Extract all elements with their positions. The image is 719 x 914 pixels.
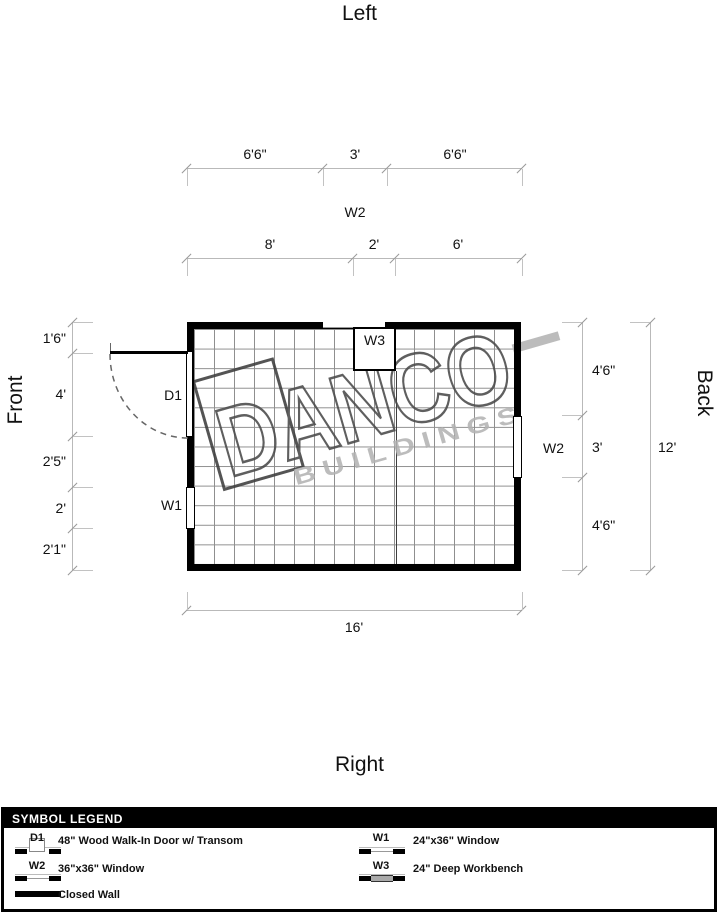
dim-left-seg5: 2'1": [26, 541, 66, 557]
dim-extension: [522, 592, 523, 610]
legend-w2-desc: 36"x36" Window: [58, 863, 144, 875]
dim-line: [187, 258, 522, 259]
legend-w3-code: W3: [356, 860, 406, 872]
legend-w1-code: W1: [356, 832, 406, 844]
legend-window-glyph: [27, 878, 49, 879]
orientation-label-bottom: Right: [0, 753, 719, 777]
dim-extension: [73, 353, 93, 354]
symbol-legend: SYMBOL LEGEND D1 48" Wood Walk-In Door w…: [1, 807, 717, 912]
dim-right-seg2: 3': [592, 439, 602, 455]
dim-top1-seg1: 6'6": [225, 146, 285, 162]
legend-symbol-wall-cap: [15, 876, 27, 881]
dim-right-seg1: 4'6": [592, 362, 615, 378]
legend-symbol-wall-cap: [359, 849, 371, 854]
workbench-label: W3: [355, 332, 394, 348]
legend-d1-code: D1: [12, 832, 62, 844]
dim-line: [650, 322, 651, 570]
legend-workbench-glyph: [371, 875, 393, 882]
dim-top2-seg1: 8': [240, 236, 300, 252]
window-w1-label: W1: [150, 497, 182, 513]
dim-bottom-total: 16': [324, 619, 384, 635]
dim-left-seg2: 4': [26, 386, 66, 402]
window-w2-right-label: W2: [543, 440, 564, 456]
door-d1-opening: [186, 351, 193, 437]
dim-extension: [562, 415, 582, 416]
dim-extension: [323, 169, 324, 186]
dim-line: [72, 322, 73, 570]
dim-extension: [562, 570, 582, 571]
legend-title: SYMBOL LEGEND: [4, 810, 714, 828]
dim-extension: [395, 259, 396, 276]
dim-top1-seg3: 6'6": [425, 146, 485, 162]
legend-symbol-wall-cap: [15, 849, 27, 854]
dim-extension: [562, 322, 582, 323]
dim-feature-w2-label: W2: [325, 204, 385, 220]
window-w2-right-opening: [513, 416, 522, 478]
dim-right-seg3: 4'6": [592, 517, 615, 533]
legend-w3-desc: 24" Deep Workbench: [413, 863, 523, 875]
dim-extension: [630, 570, 650, 571]
dim-top2-seg3: 6': [428, 236, 488, 252]
door-leaf-tip-dash: [110, 343, 111, 351]
dim-extension: [187, 592, 188, 610]
dim-extension: [630, 322, 650, 323]
dim-extension: [73, 570, 93, 571]
window-w1-opening: [186, 487, 195, 529]
orientation-label-top: Left: [0, 2, 719, 26]
dim-extension: [522, 259, 523, 276]
dim-right-total: 12': [658, 439, 676, 455]
orientation-label-left: Front: [4, 360, 28, 440]
dim-extension: [353, 259, 354, 276]
legend-symbol-wall-cap: [49, 876, 61, 881]
dim-extension: [73, 322, 93, 323]
legend-symbol-wall-cap: [359, 876, 371, 881]
orientation-label-right: Back: [692, 353, 716, 433]
dim-left-seg1: 1'6": [26, 330, 66, 346]
legend-symbol-wall-cap: [393, 876, 405, 881]
dim-left-seg4: 2': [26, 500, 66, 516]
legend-symbol-wall-cap: [393, 849, 405, 854]
legend-closed-wall-glyph: [15, 891, 61, 897]
dim-extension: [73, 528, 93, 529]
dim-extension: [562, 477, 582, 478]
dim-extension: [73, 487, 93, 488]
legend-symbol-line: [15, 874, 61, 875]
dim-extension: [187, 259, 188, 276]
legend-symbol-wall-cap: [49, 849, 61, 854]
legend-w1-desc: 24"x36" Window: [413, 835, 499, 847]
legend-symbol-line: [359, 847, 405, 848]
workbench-w3: W3: [353, 327, 396, 371]
dim-extension: [522, 169, 523, 186]
floorplan-page: Left Right Front Back 6'6" 3' 6'6" W2 8'…: [0, 0, 719, 914]
dim-extension: [187, 169, 188, 186]
legend-w2-code: W2: [12, 860, 62, 872]
dim-line: [582, 322, 583, 570]
legend-window-glyph: [371, 851, 393, 852]
door-d1-label: D1: [150, 387, 182, 403]
dim-top1-seg2: 3': [325, 146, 385, 162]
door-leaf: [110, 351, 188, 354]
legend-d1-desc: 48" Wood Walk-In Door w/ Transom: [58, 835, 243, 847]
dim-extension: [387, 169, 388, 186]
dim-line: [187, 168, 522, 169]
legend-closed-wall-desc: Closed Wall: [58, 889, 120, 901]
dim-top2-seg2: 2': [344, 236, 404, 252]
dim-left-seg3: 2'5": [26, 453, 66, 469]
dim-line: [187, 610, 522, 611]
dim-extension: [73, 436, 93, 437]
